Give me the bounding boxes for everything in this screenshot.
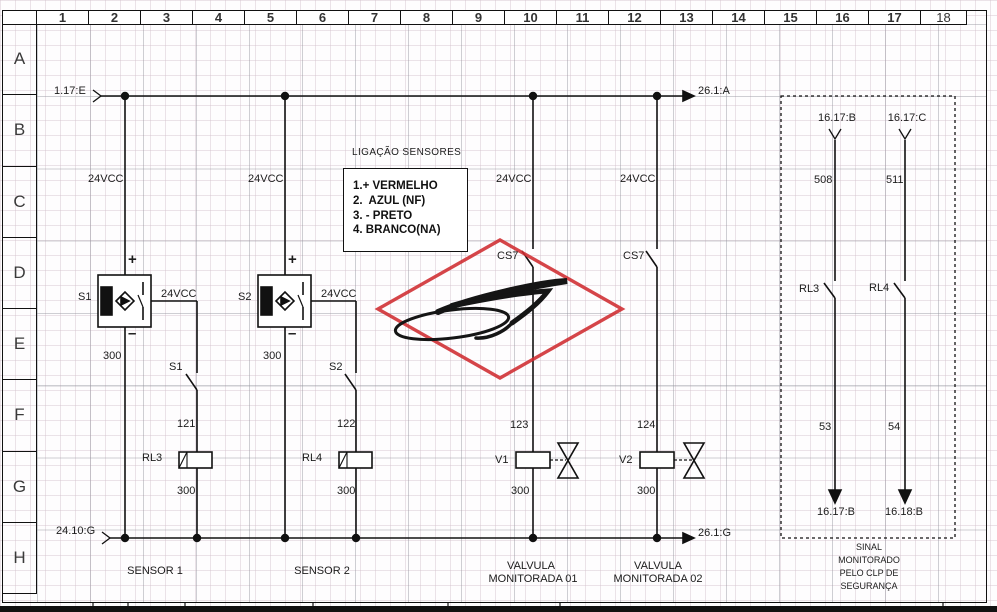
sensor2-contact-tag: S2 <box>329 361 342 373</box>
row-header-a: A <box>2 23 37 95</box>
row-header-g: G <box>2 451 37 523</box>
monitor2-from-ref: 16.17:C <box>888 112 927 124</box>
relay-rl3-tag: RL3 <box>142 452 162 464</box>
sensor1-branch <box>98 96 212 538</box>
relay-rl4-tag: RL4 <box>302 452 322 464</box>
coil-rl4 <box>339 452 372 468</box>
valve2-branch <box>640 96 704 538</box>
circuit-drawing <box>0 0 997 612</box>
corner-cell <box>2 10 37 25</box>
sensor1-contact-tag: S1 <box>169 361 182 373</box>
monitor1-wire-in-number: 508 <box>814 174 832 186</box>
relay-rl4-wire-number: 300 <box>337 485 355 497</box>
monitor-caption-line3: PELO CLP DE <box>840 569 899 579</box>
sensor2-contact-wire-number: 122 <box>337 418 355 430</box>
column-header-9: 9 <box>452 10 505 25</box>
column-header-18: 18 <box>920 10 967 25</box>
column-header-13: 13 <box>660 10 713 25</box>
sensor1-plus-sign: + <box>128 252 137 269</box>
valve1-contact-tag: CS7 <box>497 250 518 262</box>
monitor-caption-line4: SEGURANÇA <box>840 582 897 592</box>
sensor2-supply-label: 24VCC <box>248 173 283 185</box>
column-header-strip: 1 2 3 4 5 6 7 8 9 10 11 12 13 14 15 16 1… <box>2 10 967 25</box>
row-header-strip: A B C D E F G H <box>2 24 37 594</box>
contact-s2 <box>345 374 356 390</box>
column-header-7: 7 <box>348 10 401 25</box>
top-rail-dest-ref: 26.1:A <box>698 85 730 97</box>
valve1-caption-line1: VALVULA <box>507 560 555 572</box>
monitor-dashed-box <box>781 96 955 538</box>
column-header-8: 8 <box>400 10 453 25</box>
column-header-11: 11 <box>556 10 609 25</box>
relay-rl3-wire-number: 300 <box>177 485 195 497</box>
row-header-b: B <box>2 94 37 166</box>
sensor2-tag: S2 <box>238 291 251 303</box>
column-header-2: 2 <box>88 10 141 25</box>
monitor1-wire-out-number: 53 <box>819 421 831 433</box>
coil-rl3 <box>179 452 212 468</box>
column-header-12: 12 <box>608 10 661 25</box>
valve2-wire-number: 124 <box>637 419 655 431</box>
sensor1-wire-number: 300 <box>103 350 121 362</box>
sensor1-output-label: 24VCC <box>161 288 196 300</box>
sensor1-contact-wire-number: 121 <box>177 418 195 430</box>
monitor2-wire-out-number: 54 <box>888 421 900 433</box>
contact-rl3 <box>824 283 835 298</box>
monitor2-to-ref: 16.18:B <box>885 506 923 518</box>
row-header-c: C <box>2 166 37 238</box>
coil-v1 <box>516 452 550 468</box>
sensor1-minus-sign: – <box>128 326 136 343</box>
legend-line-1: 1.+ VERMELHO <box>353 179 467 194</box>
contact-rl4 <box>894 283 905 298</box>
row-header-d: D <box>2 237 37 309</box>
monitor1-contact-tag: RL3 <box>799 283 819 295</box>
monitor1-to-ref: 16.17:B <box>817 506 855 518</box>
monitor2-contact-tag: RL4 <box>869 282 889 294</box>
row-header-e: E <box>2 308 37 380</box>
bottom-power-rail <box>102 532 694 544</box>
sensor1-supply-label: 24VCC <box>88 173 123 185</box>
valve2-caption-line1: VALVULA <box>634 560 682 572</box>
sensor2-caption: SENSOR 2 <box>294 565 350 577</box>
monitor2-wire-in-number: 511 <box>886 174 904 186</box>
valve2-supply-label: 24VCC <box>620 173 655 185</box>
sensor1-tag: S1 <box>78 291 91 303</box>
sensor1-caption: SENSOR 1 <box>127 565 183 577</box>
sensor2-wire-number: 300 <box>263 350 281 362</box>
legend-line-4: 4. BRANCO(NA) <box>353 223 467 238</box>
column-header-3: 3 <box>140 10 193 25</box>
column-header-1: 1 <box>36 10 89 25</box>
valve1-wire-number: 123 <box>510 419 528 431</box>
sensor2-minus-sign: – <box>288 326 296 343</box>
valve2-coil-tag: V2 <box>619 454 632 466</box>
monitor-caption-line2: MONITORADO <box>838 556 900 566</box>
sensor2-branch <box>258 96 372 538</box>
column-header-4: 4 <box>192 10 245 25</box>
legend-box: 1.+ VERMELHO 2. AZUL (NF) 3. - PRETO 4. … <box>343 168 468 252</box>
signature-icon <box>394 281 567 345</box>
bottom-rail-dest-ref: 26.1:G <box>698 527 731 539</box>
valve1-branch <box>516 96 578 538</box>
valve1-supply-label: 24VCC <box>496 173 531 185</box>
contact-cs7-2 <box>646 251 657 267</box>
top-rail-source-ref: 1.17:E <box>54 85 86 97</box>
column-header-16: 16 <box>816 10 869 25</box>
sensor2-plus-sign: + <box>288 252 297 269</box>
bottom-rail-source-ref: 24.10:G <box>56 525 95 537</box>
column-header-6: 6 <box>296 10 349 25</box>
valve1-coil-wire-number: 300 <box>511 485 529 497</box>
column-header-5: 5 <box>244 10 297 25</box>
sensor2-output-label: 24VCC <box>321 288 356 300</box>
valve2-caption-line2: MONITORADA 02 <box>613 573 702 585</box>
title-block-edge <box>0 602 997 612</box>
legend-line-2: 2. AZUL (NF) <box>353 194 467 209</box>
legend-line-3: 3. - PRETO <box>353 209 467 224</box>
schematic-sheet: 1 2 3 4 5 6 7 8 9 10 11 12 13 14 15 16 1… <box>0 0 997 612</box>
coil-v2 <box>640 452 674 468</box>
column-header-14: 14 <box>712 10 765 25</box>
monitor1-from-ref: 16.17:B <box>818 112 856 124</box>
column-header-17: 17 <box>868 10 921 25</box>
legend-title: LIGAÇÃO SENSORES <box>352 147 461 158</box>
monitor-caption-line1: SINAL <box>856 543 882 553</box>
contact-s1 <box>186 374 197 390</box>
valve2-contact-tag: CS7 <box>623 250 644 262</box>
valve1-coil-tag: V1 <box>495 454 508 466</box>
top-power-rail <box>93 90 694 102</box>
valve2-coil-wire-number: 300 <box>637 485 655 497</box>
column-header-10: 10 <box>504 10 557 25</box>
column-header-15: 15 <box>764 10 817 25</box>
row-header-h: H <box>2 522 37 594</box>
row-header-f: F <box>2 379 37 451</box>
valve1-caption-line2: MONITORADA 01 <box>488 573 577 585</box>
